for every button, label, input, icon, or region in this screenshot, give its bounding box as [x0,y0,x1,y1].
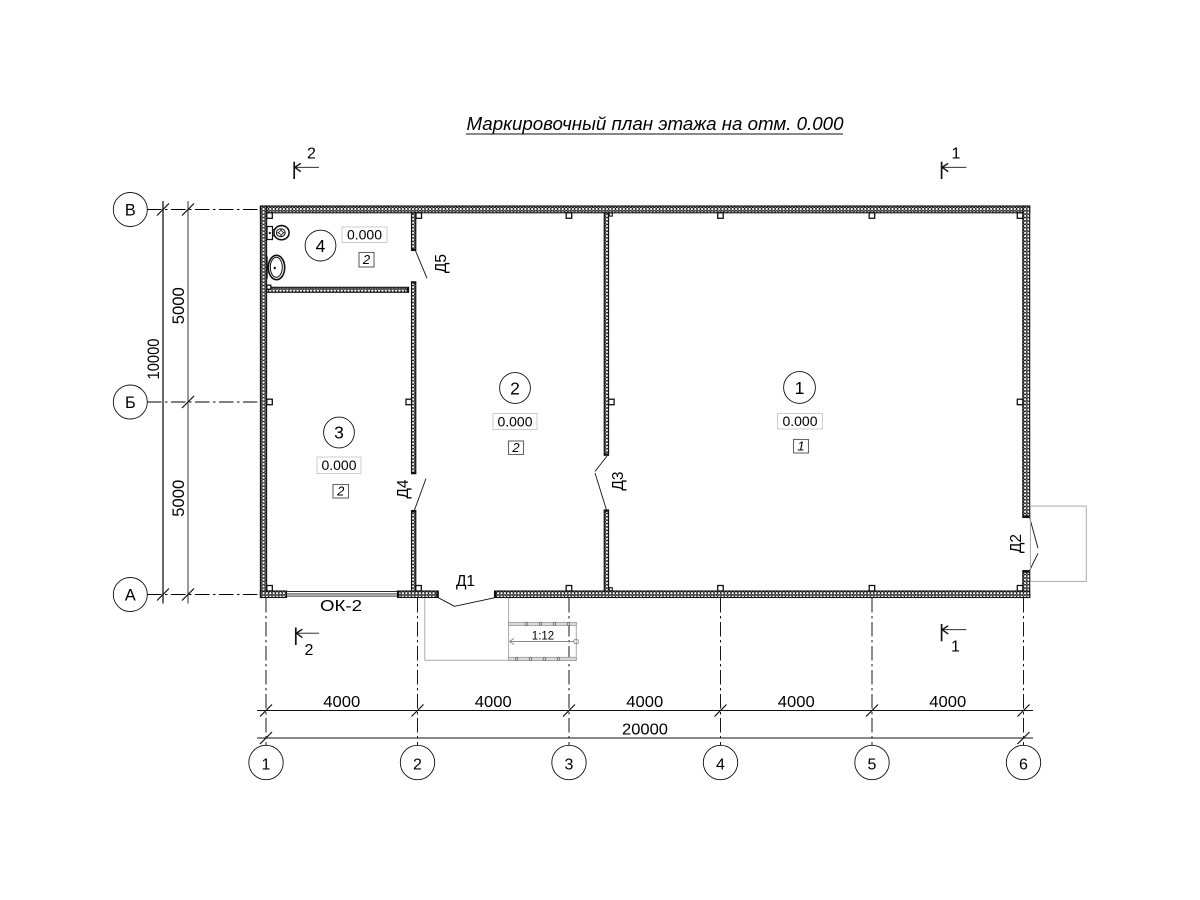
svg-text:4000: 4000 [626,694,663,711]
svg-text:1: 1 [795,378,805,398]
svg-text:0.000: 0.000 [347,227,382,243]
svg-text:5: 5 [868,756,877,773]
svg-text:Д4: Д4 [395,479,412,498]
svg-text:4: 4 [316,236,326,256]
svg-text:5000: 5000 [170,287,188,324]
svg-text:2: 2 [413,756,422,773]
svg-text:4: 4 [716,756,725,773]
svg-text:1: 1 [797,439,804,454]
svg-text:2: 2 [336,484,345,499]
svg-text:4000: 4000 [929,694,966,711]
svg-text:1: 1 [951,639,960,656]
svg-text:1:12: 1:12 [532,631,554,643]
svg-text:2: 2 [510,379,520,399]
svg-text:1: 1 [262,756,271,773]
svg-text:ОК-2: ОК-2 [320,598,362,615]
svg-text:Д1: Д1 [456,573,475,590]
svg-text:6: 6 [1019,756,1028,773]
svg-text:4000: 4000 [475,694,512,711]
svg-text:0.000: 0.000 [321,457,356,473]
svg-text:2: 2 [362,252,371,267]
svg-text:3: 3 [565,756,574,773]
svg-text:10000: 10000 [145,339,163,380]
svg-text:Д5: Д5 [433,254,450,273]
svg-text:Д2: Д2 [1008,534,1025,553]
svg-text:4000: 4000 [778,694,815,711]
svg-text:4000: 4000 [323,694,360,711]
svg-text:Б: Б [125,394,136,412]
svg-text:Д3: Д3 [610,471,627,490]
svg-text:Маркировочный план этажа на от: Маркировочный план этажа на отм. 0.000 [467,113,845,134]
svg-text:3: 3 [334,423,344,443]
svg-text:20000: 20000 [622,722,668,739]
svg-text:2: 2 [511,440,520,455]
svg-text:2: 2 [305,642,314,659]
svg-text:1: 1 [952,145,961,162]
svg-text:0.000: 0.000 [782,413,817,429]
svg-text:0.000: 0.000 [497,414,532,430]
svg-text:2: 2 [307,145,316,162]
svg-text:5000: 5000 [170,480,188,517]
svg-text:В: В [125,201,136,219]
svg-text:А: А [125,586,136,604]
